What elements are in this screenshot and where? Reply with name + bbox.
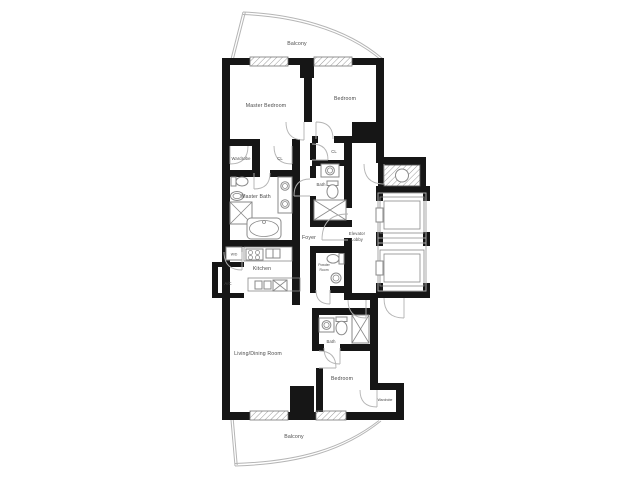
label-living-dining: Living/Dining Room [234, 351, 282, 357]
floor-plan-drawing: Balcony Master Bedroom Bedroom Wardrobe … [0, 0, 640, 480]
sink-icon [321, 164, 339, 177]
walls [212, 58, 430, 420]
balcony-top-rail [231, 12, 383, 60]
toilet-icon [231, 177, 248, 186]
label-bedroom-top: Bedroom [334, 96, 356, 102]
shower-icon [314, 200, 346, 220]
label-balcony-top: Balcony [287, 41, 307, 47]
label-master-bedroom: Master Bedroom [246, 103, 286, 109]
stove-icon [246, 249, 263, 260]
label-closet-master: CL [277, 156, 283, 161]
window [316, 411, 346, 420]
floor-plan-page: Balcony Master Bedroom Bedroom Wardrobe … [0, 0, 640, 480]
window [250, 57, 288, 66]
bathtub-icon [247, 218, 281, 239]
toilet-icon [327, 181, 338, 198]
label-ac-closet: A/C [224, 281, 231, 286]
toilet-icon [336, 317, 347, 335]
window [314, 57, 352, 66]
master-bath-fixtures [230, 177, 292, 239]
powder-room-fixtures [327, 254, 344, 284]
shower-icon [352, 315, 369, 343]
label-kitchen: Kitchen [253, 266, 271, 272]
elevator-car [376, 197, 424, 233]
label-closet-bedroom: CL [331, 149, 337, 154]
label-elevator-lobby-2: Lobby [351, 237, 364, 242]
elevator-car [376, 250, 424, 286]
label-bath-mid: Bath [316, 182, 326, 187]
label-bedroom-lower: Bedroom [331, 376, 353, 382]
sink-icon [331, 273, 341, 283]
label-wardrobe-lower: Wardrobe [378, 398, 393, 402]
label-washer-dryer: W/D [231, 253, 238, 257]
label-master-bath: Master Bath [241, 194, 271, 200]
label-powder-1: Powder [318, 263, 330, 267]
label-foyer: Foyer [302, 235, 316, 241]
middle-bath-fixtures [314, 164, 346, 220]
kitchen-sink-icon [266, 249, 280, 258]
label-bath-lower: Bath [326, 339, 336, 344]
label-elevator-lobby-1: Elevator [349, 231, 366, 236]
trash-chute-icon [384, 165, 420, 186]
label-wardrobe-master: Wardrobe [231, 156, 251, 161]
label-powder-2: Room [319, 268, 328, 272]
label-balcony-bottom: Balcony [284, 434, 304, 440]
window [250, 411, 288, 420]
balcony-bottom-rail [231, 420, 381, 466]
elevator-shaft [376, 193, 426, 291]
double-vanity-icon [278, 177, 292, 213]
sink-icon [319, 318, 334, 332]
